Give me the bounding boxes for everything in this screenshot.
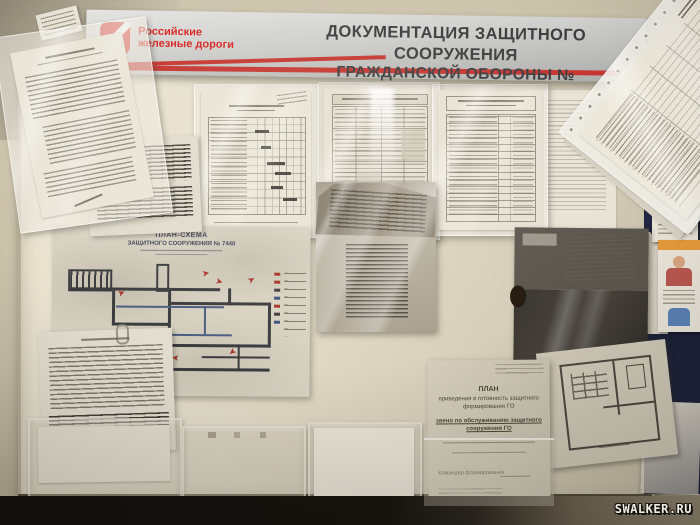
red-arrow-icon: ➤ [202,270,211,280]
plan-legend-mark-2 [274,281,280,284]
poster-2-header-band [658,240,700,250]
crumpled-wrinkle-streaks [316,182,436,332]
watermark: SWALKER.RU [615,502,692,516]
banner-title: ДОКУМЕНТАЦИЯ ЗАЩИТНОГО СООРУЖЕНИЯ ГРАЖДА… [273,21,638,87]
schedule-bar-5 [271,186,283,189]
plan-legend-mark-1 [274,273,280,276]
schedule-footer-line [214,222,298,223]
pocket-front-over-plan-doc [424,438,554,506]
schedule-table [208,117,306,215]
norms-shaded-cell-1 [401,129,425,159]
header-banner: Российские железные дороги ДОКУМЕНТАЦИЯ … [86,10,647,83]
poster-2-text [663,290,695,304]
poster-card-2 [658,240,700,332]
plan-legend-mark-6 [274,313,280,316]
readiness-plan-title: ПЛАН [428,385,550,393]
handwritten-block-1 [25,59,126,120]
equipment-right-col-text [513,117,533,217]
equipment-title-line1 [458,100,525,102]
dark-blueprint-top [514,227,649,290]
pocket-white-sheet [314,428,414,500]
plan-legend-mark-4 [274,297,280,300]
schedule-row-labels [211,120,247,210]
plan-wall-v4 [228,288,231,305]
schedule-document-page [201,91,311,231]
small-floorplan-room-box [626,364,647,390]
floor-shadow-strip [0,496,700,525]
schedule-bar-3 [267,162,285,165]
handwritten-heading-1 [45,47,95,58]
poster-2-person-2 [668,308,690,326]
plan-legend-mark-3 [274,289,280,292]
pocket-left-papers [38,425,171,483]
readiness-plan-line4: сооружения ГО [428,425,550,432]
paperclip-icon [115,324,129,344]
plan-legend-text [284,273,306,337]
equipment-list-document-sleeve [432,84,548,236]
schedule-document-sleeve [194,84,318,238]
banner-title-line-1: ДОКУМЕНТАЦИЯ ЗАЩИТНОГО СООРУЖЕНИЯ [274,21,639,68]
pocket-middle-smudges [208,432,268,438]
small-floorplan-outline [559,355,660,451]
glare-streak [370,88,394,172]
schedule-title-line-2 [237,110,274,111]
plan-pipe-v [204,306,206,334]
plan-wall-v1 [112,288,115,326]
schedule-bar-6 [283,198,297,201]
plan-vent-shaft [156,264,169,292]
checklist-items [48,344,164,410]
plan-wall-v3 [268,303,271,348]
schedule-title-line-1 [229,105,284,107]
rzd-logo-text: Российские железные дороги [138,25,234,51]
equipment-rows-text [449,117,497,217]
plan-legend-mark-7 [274,321,280,324]
equipment-title-line2 [466,105,515,106]
equipment-title-box [446,96,536,111]
schedule-handwritten-note [276,91,307,105]
readiness-plan-line3: звено по обслуживанию защитного [428,417,550,424]
pocket-left [28,418,182,506]
equipment-list-page [438,90,542,230]
small-floorplan-sheet [536,339,678,469]
handwritten-document-sleeve [0,16,173,234]
crumpled-document [316,182,436,332]
poster-2-person-head [673,256,685,268]
dark-blueprint-sketch-lines [564,235,636,284]
civil-defense-stand-photo: ПЛАН-СХЕМА ЗАЩИТНОГО СООРУЖЕНИЯ № 7440 ➤… [0,0,700,525]
plan-legend-mark-5 [274,305,280,308]
schedule-bar-2 [261,146,271,149]
small-floorplan-partition-h [603,401,654,409]
schedule-bar-1 [255,130,269,133]
schedule-bar-4 [275,172,291,175]
rzd-logo-line-2: железные дороги [138,38,234,52]
equipment-table-grid [446,114,536,222]
readiness-plan-line2: формирования ГО [428,403,550,410]
readiness-plan-line1: приведения в готовность защитного [428,395,550,402]
readiness-plan-stamp [495,364,543,376]
dark-blueprint-label [523,233,557,245]
handwritten-document-page [10,32,154,219]
handwritten-signature [74,194,102,207]
small-floorplan-bunks [570,370,609,400]
poster-2-person-body [666,268,692,286]
